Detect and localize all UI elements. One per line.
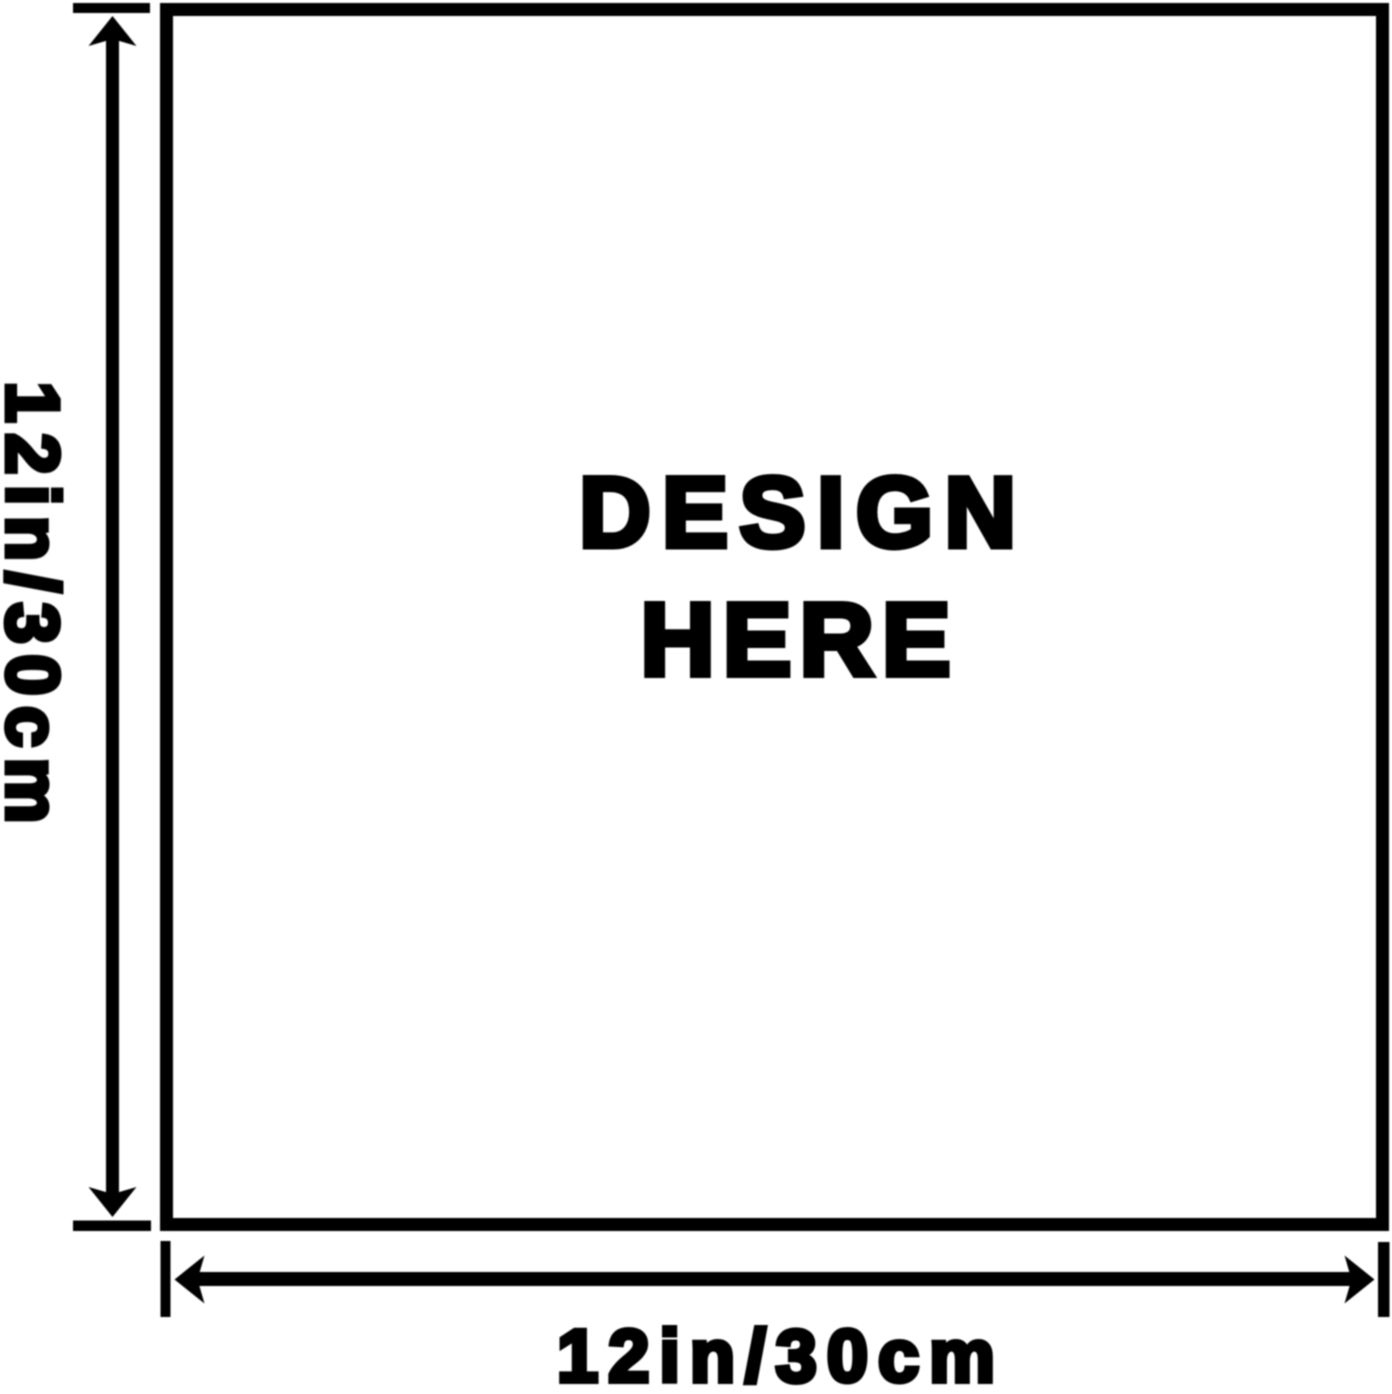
svg-text:HERE: HERE: [640, 582, 958, 697]
svg-text:12in/30cm: 12in/30cm: [557, 1315, 1005, 1390]
svg-text:12in/30cm: 12in/30cm: [0, 382, 74, 834]
svg-text:DESIGN: DESIGN: [579, 457, 1027, 568]
